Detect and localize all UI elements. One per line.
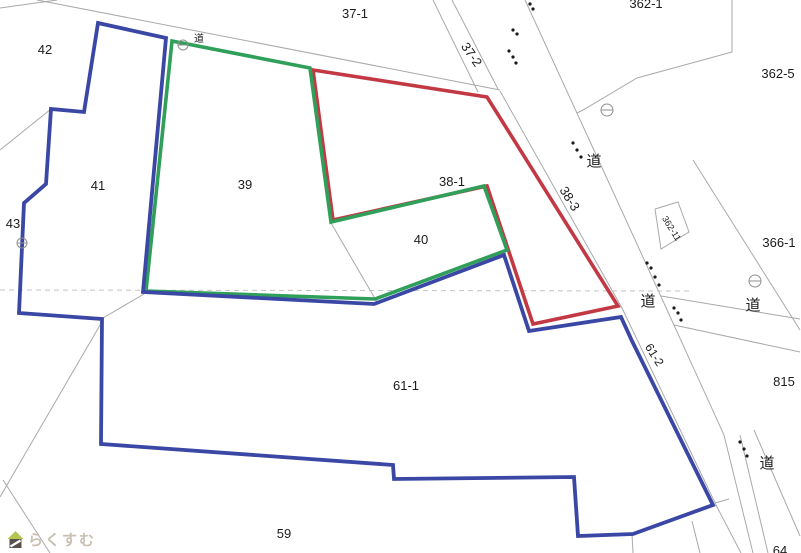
sheet-boundary-dashed-line (0, 290, 690, 291)
parcel-label-366-1: 366-1 (762, 235, 795, 250)
road-label: 道 (194, 32, 204, 45)
survey-point-dot (511, 55, 514, 58)
parcel-boundary-line (0, 109, 51, 150)
parcel-boundary-line (577, 0, 732, 113)
survey-point-dot (645, 261, 648, 264)
parcel-label-362-1: 362-1 (629, 0, 662, 11)
parcel-boundary-line (103, 294, 144, 318)
survey-point-dot (511, 28, 514, 31)
parcel-label-41: 41 (91, 178, 105, 193)
survey-point-dot (514, 61, 517, 64)
road-label: 道 (759, 455, 774, 472)
parcel-label-42: 42 (38, 42, 52, 57)
survey-point-dot (507, 49, 510, 52)
survey-point-dot (649, 266, 652, 269)
parcel-boundary-line (661, 296, 800, 319)
road-label: 道 (586, 153, 601, 170)
survey-point-dot (745, 454, 748, 457)
survey-point-dot (742, 447, 745, 450)
survey-point-dot (579, 155, 582, 158)
survey-point-dot (738, 440, 741, 443)
parcel-label-38-1: 38-1 (439, 174, 465, 189)
survey-point-dot (653, 275, 656, 278)
cadastral-map-svg: 37-14241433938-14037-238-3362-1362-5362-… (0, 0, 801, 553)
survey-point-dot (676, 311, 679, 314)
parcel-boundary-line (525, 0, 753, 553)
parcel-boundary-line (754, 430, 800, 536)
parcel-label-815: 815 (773, 374, 795, 389)
survey-point-dot (531, 7, 534, 10)
parcel-boundary-line (3, 480, 50, 553)
parcel-boundary-line (0, 0, 57, 8)
highlight-boundary-blue (19, 23, 713, 536)
survey-point-dot (515, 32, 518, 35)
parcel-label-39: 39 (238, 177, 252, 192)
parcel-label-40: 40 (414, 232, 428, 247)
parcel-boundary-line (632, 534, 633, 553)
survey-point-dot (672, 306, 675, 309)
parcel-label-59: 59 (277, 526, 291, 541)
parcel-label-61-1: 61-1 (393, 378, 419, 393)
cadastral-map-canvas: 37-14241433938-14037-238-3362-1362-5362-… (0, 0, 801, 553)
parcel-label-37-1: 37-1 (342, 6, 368, 21)
parcel-boundary-line (0, 320, 103, 497)
parcel-boundary-line (37, 0, 500, 90)
parcel-boundary-line (715, 499, 729, 503)
survey-point-dot (657, 283, 660, 286)
survey-point-dot (679, 318, 682, 321)
road-label: 道 (745, 297, 760, 314)
survey-point-dot (575, 148, 578, 151)
survey-point-dot (571, 141, 574, 144)
parcel-boundary-line (692, 521, 700, 553)
parcel-label-362-5: 362-5 (761, 66, 794, 81)
parcel-label-37-2: 37-2 (458, 39, 485, 69)
parcel-label-43: 43 (6, 216, 20, 231)
parcel-boundary-line (674, 325, 800, 352)
survey-point-dot (528, 2, 531, 5)
parcel-label-362-11: 362-11 (660, 214, 683, 243)
parcel-label-64: 64 (773, 543, 787, 553)
road-label: 道 (640, 293, 655, 310)
